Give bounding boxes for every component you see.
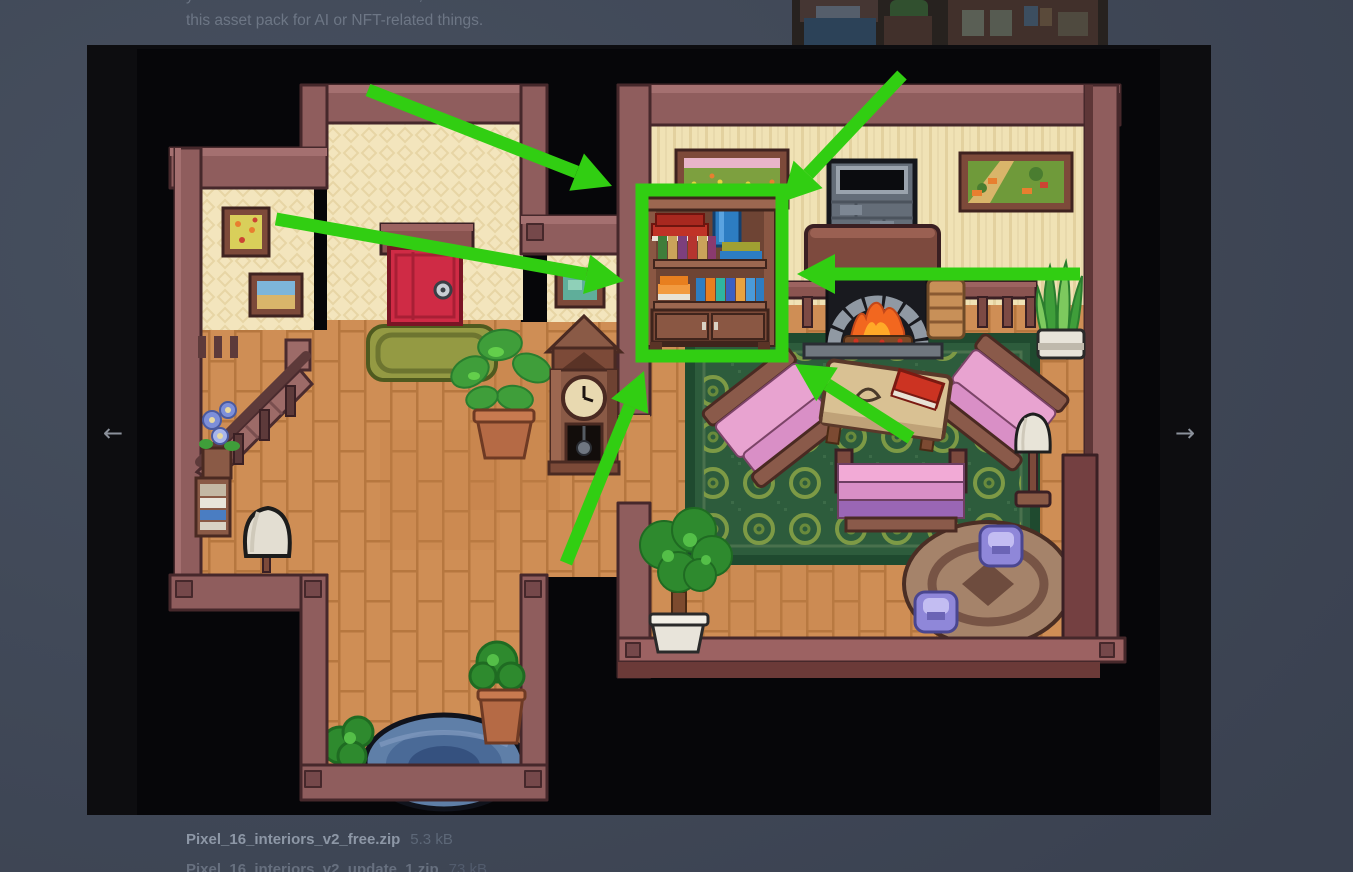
license-line-1: you cannot resell or redistribute it, ev… (186, 0, 826, 8)
desk-paper (962, 10, 984, 36)
desk-book (1040, 8, 1052, 26)
file-name-link[interactable]: Pixel_16_interiors_v2_free.zip (186, 831, 400, 848)
framed-picture-landscape (250, 274, 302, 316)
desk-paper (990, 10, 1012, 36)
file-name-link[interactable]: Pixel_16_interiors_v2_update_1.zip (186, 861, 439, 872)
desk-book (1024, 6, 1038, 26)
nightstand (884, 16, 932, 45)
license-text: you cannot resell or redistribute it, ev… (186, 0, 826, 33)
prev-image-button[interactable]: ← (96, 416, 130, 450)
file-size: 73 kB (449, 861, 487, 872)
side-shelf (196, 478, 230, 536)
pixel-art-scene (137, 45, 1160, 815)
bookshelf (642, 198, 778, 350)
downloads-section: Pixel_16_interiors_v2_free.zip5.3 kB Pix… (0, 815, 1353, 872)
garden-painting (960, 153, 1072, 211)
hearth (804, 344, 942, 358)
file-row[interactable]: Pixel_16_interiors_v2_update_1.zip73 kB (186, 861, 487, 872)
page-screenshot-fragment (792, 0, 1108, 45)
firewood-pile (928, 280, 964, 338)
framed-picture-flowers (223, 208, 269, 256)
pouf (915, 592, 957, 632)
next-image-button[interactable]: → (1168, 416, 1202, 450)
file-row[interactable]: Pixel_16_interiors_v2_free.zip5.3 kB (186, 831, 453, 848)
license-line-2: this asset pack for AI or NFT-related th… (186, 8, 826, 33)
file-size: 5.3 kB (410, 831, 453, 848)
lightbox-image[interactable] (137, 45, 1160, 815)
pouf (980, 526, 1022, 566)
bed-blanket (804, 18, 876, 45)
desk-items (1058, 12, 1088, 36)
